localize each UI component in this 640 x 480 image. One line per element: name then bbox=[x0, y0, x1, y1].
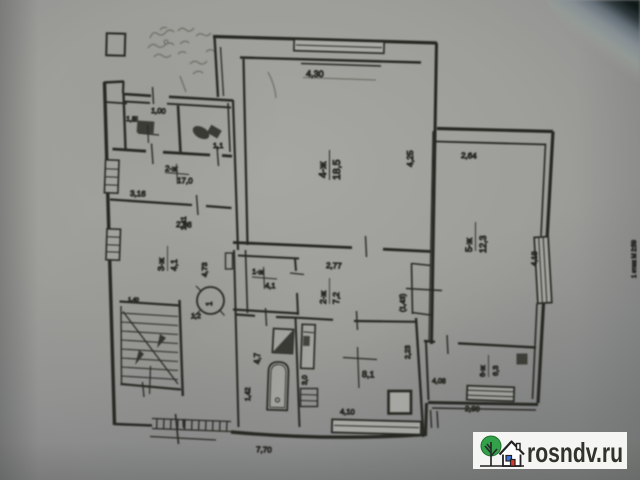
svg-text:rosndv.ru: rosndv.ru bbox=[527, 437, 623, 468]
